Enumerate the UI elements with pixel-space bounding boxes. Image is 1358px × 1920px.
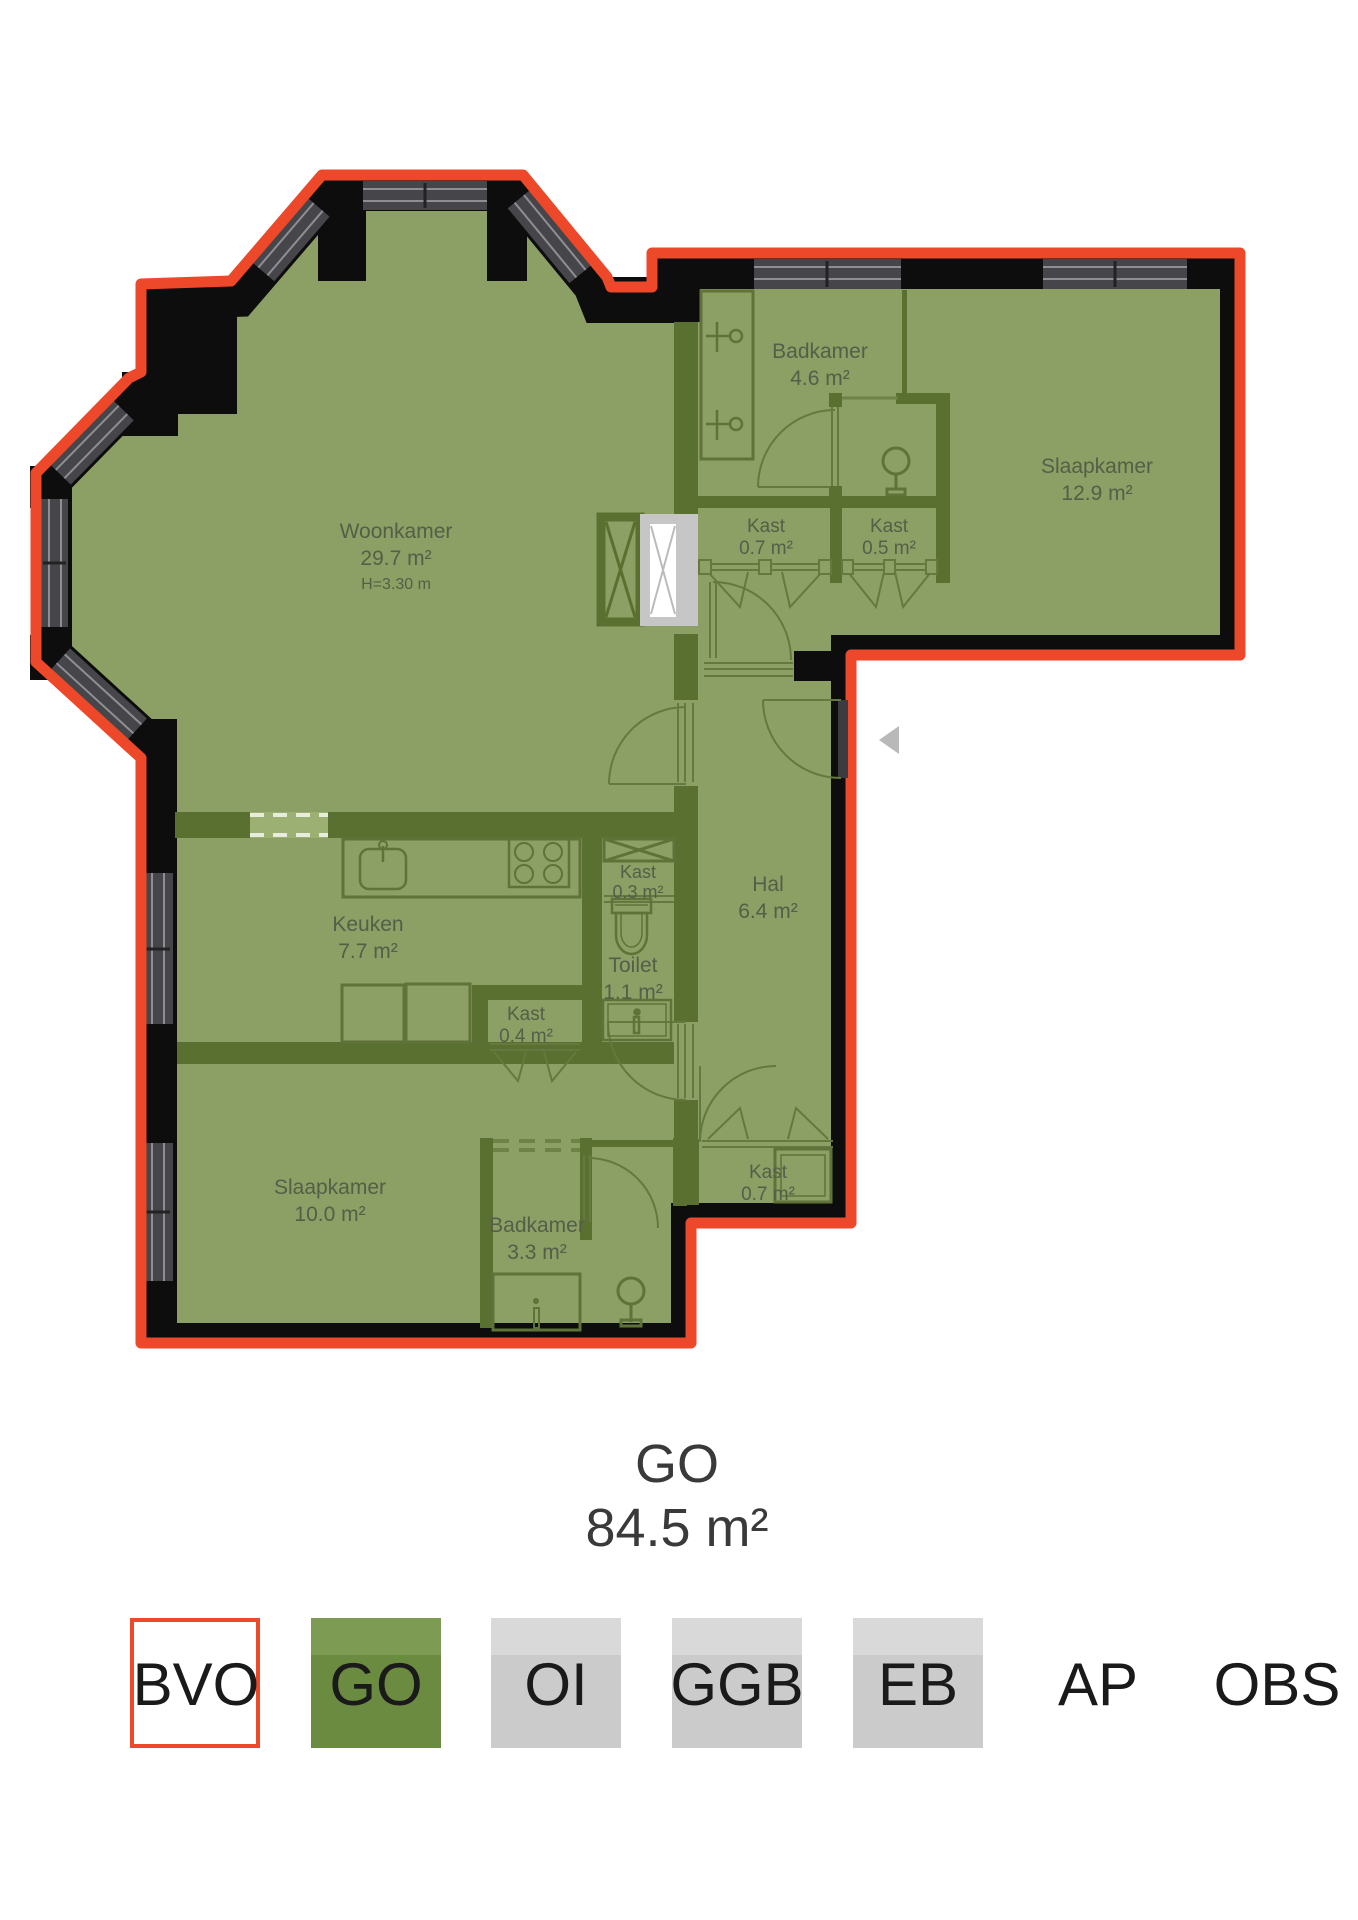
svg-text:0.3 m²: 0.3 m²	[612, 882, 663, 902]
svg-text:7.7 m²: 7.7 m²	[338, 940, 398, 963]
svg-text:Hal: Hal	[752, 873, 784, 896]
svg-text:Badkamer: Badkamer	[489, 1214, 585, 1237]
svg-text:Toilet: Toilet	[608, 954, 657, 977]
svg-text:EB: EB	[878, 1651, 958, 1718]
svg-text:3.3 m²: 3.3 m²	[507, 1241, 567, 1264]
svg-text:0.5 m²: 0.5 m²	[862, 538, 916, 559]
svg-text:Kast: Kast	[747, 516, 786, 537]
svg-text:Keuken: Keuken	[332, 913, 403, 936]
svg-text:Kast: Kast	[870, 516, 909, 537]
svg-text:0.7 m²: 0.7 m²	[741, 1184, 795, 1205]
svg-text:Badkamer: Badkamer	[772, 340, 868, 363]
svg-text:GO: GO	[329, 1651, 422, 1718]
svg-text:12.9 m²: 12.9 m²	[1061, 482, 1132, 505]
svg-text:Kast: Kast	[507, 1004, 546, 1025]
svg-text:GO: GO	[635, 1434, 719, 1494]
svg-text:GGB: GGB	[670, 1651, 803, 1718]
svg-text:0.4 m²: 0.4 m²	[499, 1026, 553, 1047]
svg-text:Kast: Kast	[749, 1162, 788, 1183]
svg-text:29.7 m²: 29.7 m²	[360, 547, 431, 570]
svg-text:6.4 m²: 6.4 m²	[738, 900, 798, 923]
svg-text:84.5 m²: 84.5 m²	[585, 1498, 768, 1558]
svg-text:AP: AP	[1058, 1651, 1138, 1718]
svg-text:H=3.30 m: H=3.30 m	[361, 576, 431, 593]
svg-text:1.1 m²: 1.1 m²	[603, 981, 663, 1004]
svg-text:Kast: Kast	[620, 862, 656, 882]
svg-text:OI: OI	[524, 1651, 587, 1718]
svg-text:4.6 m²: 4.6 m²	[790, 367, 850, 390]
svg-text:OBS: OBS	[1214, 1651, 1341, 1718]
svg-text:BVO: BVO	[133, 1651, 260, 1718]
svg-text:10.0 m²: 10.0 m²	[294, 1203, 365, 1226]
svg-text:Slaapkamer: Slaapkamer	[1041, 455, 1153, 478]
svg-text:Slaapkamer: Slaapkamer	[274, 1176, 386, 1199]
svg-text:0.7 m²: 0.7 m²	[739, 538, 793, 559]
svg-text:Woonkamer: Woonkamer	[340, 520, 453, 543]
